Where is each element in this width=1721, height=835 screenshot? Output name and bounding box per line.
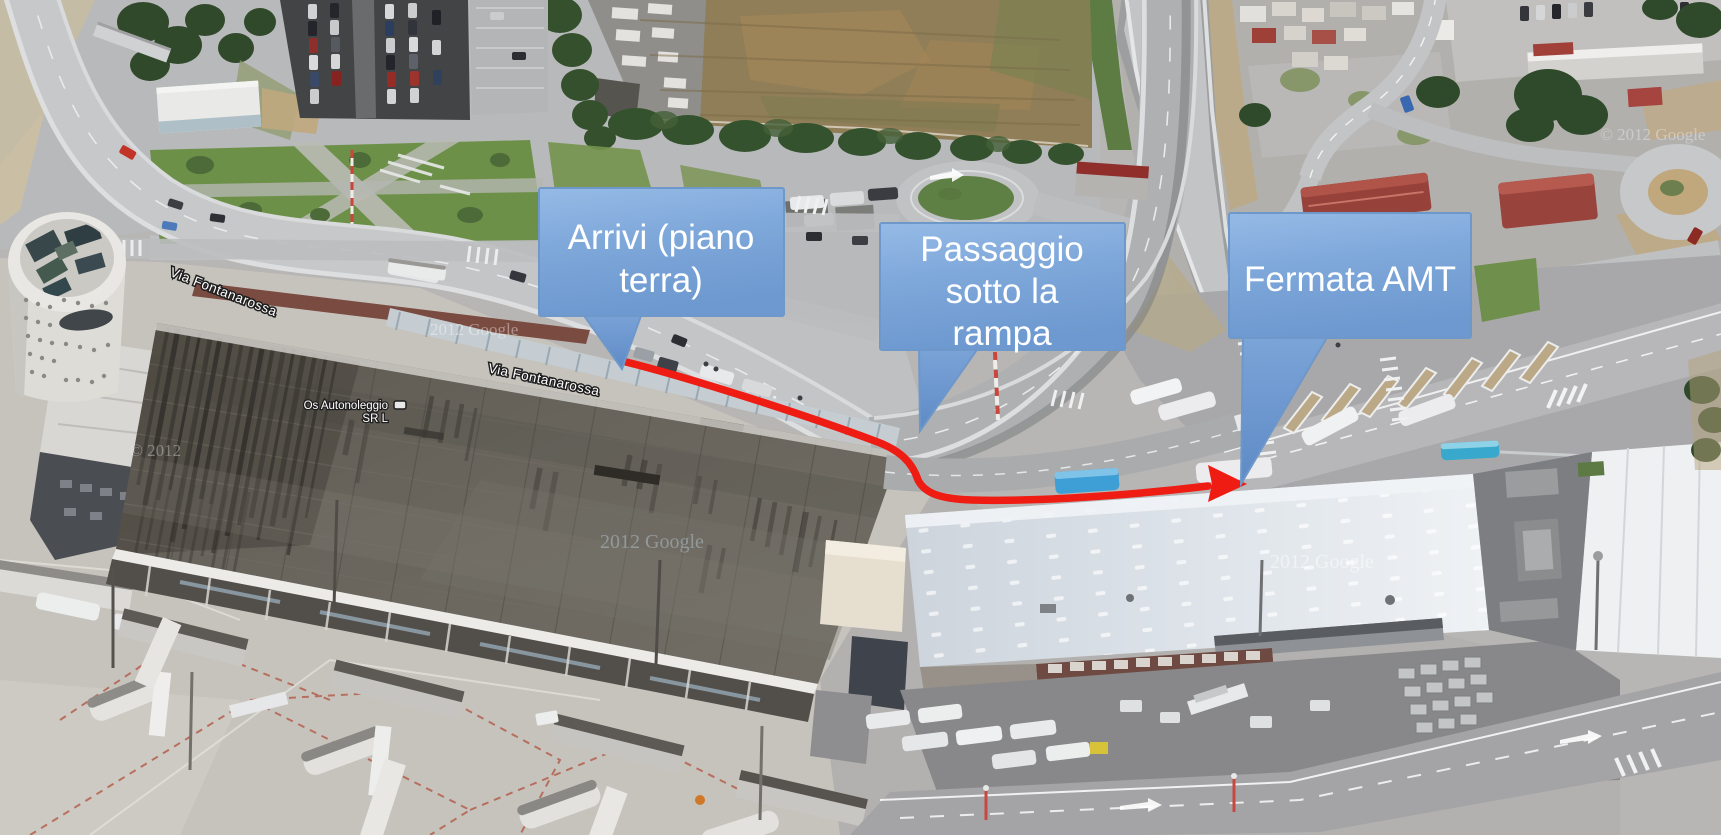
svg-text:2012 Google: 2012 Google: [1270, 551, 1374, 573]
svg-text:rampa: rampa: [952, 314, 1052, 353]
svg-text:2012 Google: 2012 Google: [600, 531, 704, 553]
svg-text:terra): terra): [619, 261, 703, 300]
svg-text:© 2012 Google: © 2012 Google: [1600, 125, 1705, 144]
svg-text:sotto la: sotto la: [946, 272, 1059, 311]
svg-text:Arrivi (piano: Arrivi (piano: [568, 218, 755, 257]
svg-text:Passaggio: Passaggio: [920, 230, 1083, 269]
svg-text:2012 Google: 2012 Google: [430, 320, 518, 339]
svg-text:© 2012: © 2012: [130, 441, 181, 460]
svg-text:Fermata AMT: Fermata AMT: [1244, 260, 1456, 299]
svg-text:Os Autonoleggio: Os Autonoleggio: [304, 400, 388, 412]
svg-text:SR L: SR L: [362, 413, 388, 425]
